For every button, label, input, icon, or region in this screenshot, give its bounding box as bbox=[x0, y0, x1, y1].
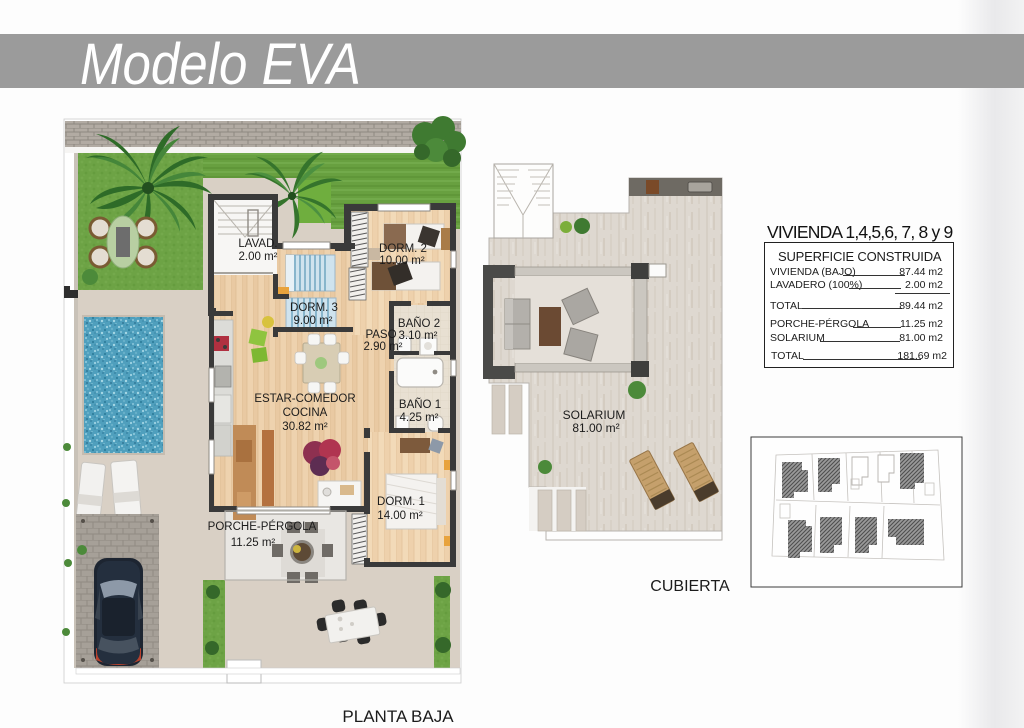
svg-text:ESTAR-COMEDOR: ESTAR-COMEDOR bbox=[254, 393, 355, 405]
svg-text:4.25 m²: 4.25 m² bbox=[400, 412, 439, 424]
svg-text:PASO: PASO bbox=[365, 329, 396, 341]
svg-text:COCINA: COCINA bbox=[283, 407, 328, 419]
svg-text:BAÑO 1: BAÑO 1 bbox=[399, 398, 441, 411]
svg-text:DORM. 2: DORM. 2 bbox=[379, 243, 427, 255]
svg-text:9.00 m²: 9.00 m² bbox=[294, 315, 333, 327]
svg-text:10.00 m²: 10.00 m² bbox=[379, 255, 425, 267]
svg-text:2.90 m²: 2.90 m² bbox=[364, 341, 403, 353]
svg-text:3.10 m²: 3.10 m² bbox=[399, 330, 438, 342]
svg-text:14.00 m²: 14.00 m² bbox=[377, 510, 423, 522]
svg-text:SOLARIUM: SOLARIUM bbox=[563, 408, 626, 422]
svg-text:BAÑO 2: BAÑO 2 bbox=[398, 317, 440, 330]
svg-text:DORM. 1: DORM. 1 bbox=[377, 496, 425, 508]
svg-text:CUBIERTA: CUBIERTA bbox=[650, 578, 730, 595]
svg-text:11.25 m²: 11.25 m² bbox=[231, 537, 276, 549]
svg-text:30.82 m²: 30.82 m² bbox=[282, 421, 328, 433]
svg-text:LAVAD.: LAVAD. bbox=[238, 238, 277, 250]
svg-text:81.00 m²: 81.00 m² bbox=[572, 421, 619, 435]
svg-text:DORM. 3: DORM. 3 bbox=[290, 302, 338, 314]
svg-text:2.00 m²: 2.00 m² bbox=[239, 251, 278, 263]
svg-text:PLANTA BAJA: PLANTA BAJA bbox=[342, 707, 454, 726]
svg-text:PORCHE-PÉRGOLA: PORCHE-PÉRGOLA bbox=[208, 520, 317, 533]
